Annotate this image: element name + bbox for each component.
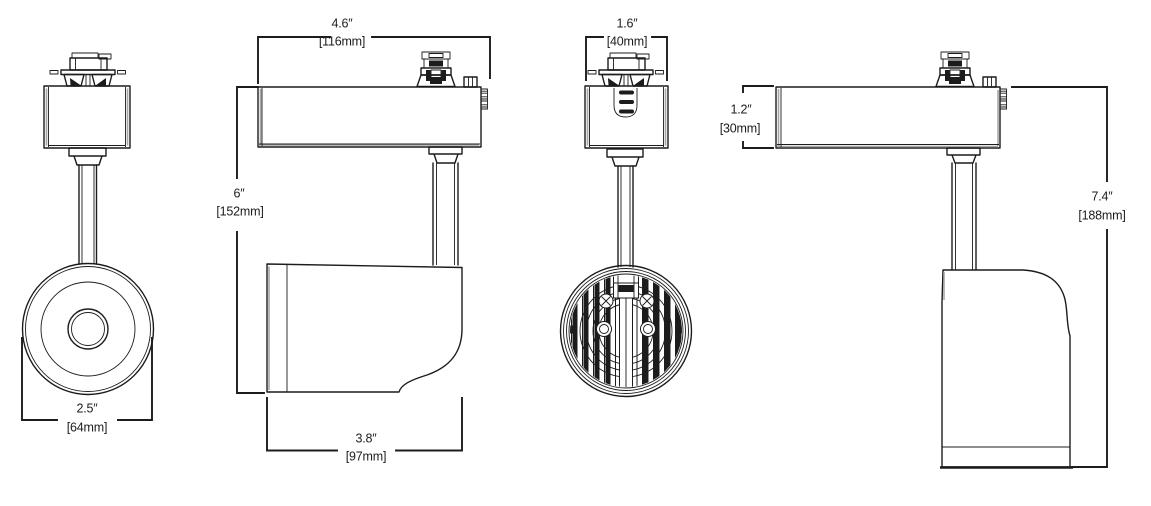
dim-housing-height-mm: [30mm] (720, 122, 760, 136)
dimension-mount-to-head: 6″ [152mm] (216, 87, 264, 393)
track-adapter (50, 53, 126, 86)
lamp-head-profile (940, 270, 1073, 468)
dim-housing-width-mm: [116mm] (319, 35, 365, 49)
mounting-collar (69, 148, 106, 165)
dim-housing-width-inches: 4.6″ (331, 17, 353, 31)
lamp-head-side (267, 264, 462, 392)
mounting-collar (607, 149, 643, 166)
view-front: 2.5″ [64mm] (22, 53, 154, 435)
dim-adapter-width-inches: 1.6″ (616, 17, 638, 31)
track-light-dimension-drawing: 2.5″ [64mm] 4.6″ [116mm] (0, 0, 1151, 506)
view-side-right: 1.2″ [30mm] 7.4″ [188mm] (720, 52, 1126, 468)
lamp-head-rear (556, 266, 696, 398)
dimension-head-length: 3.8″ [97mm] (267, 398, 462, 464)
dim-lens-diameter-inches: 2.5″ (76, 402, 98, 416)
dimension-housing-height: 1.2″ [30mm] (720, 86, 773, 148)
dimension-housing-width: 4.6″ [116mm] (258, 17, 490, 84)
dim-lens-diameter-mm: [64mm] (67, 421, 107, 435)
view-side-left: 4.6″ [116mm] 6″ [152mm] 3.8″ [97mm] (216, 17, 490, 464)
dim-head-length-mm: [97mm] (346, 450, 386, 464)
gear-housing (776, 87, 1000, 148)
dimension-overall-height: 7.4″ [188mm] (1012, 87, 1126, 467)
yoke-clamp (614, 266, 639, 390)
stem (618, 166, 633, 267)
heat-sink-fins (556, 266, 696, 397)
gear-housing (258, 87, 481, 147)
spec-drawing-canvas: 2.5″ [64mm] 4.6″ [116mm] (0, 0, 1151, 506)
stem (79, 165, 97, 264)
dim-mount-to-head-inches: 6″ (234, 187, 246, 201)
dim-housing-height-inches: 1.2″ (730, 103, 752, 117)
dim-overall-height-mm: [188mm] (1078, 209, 1125, 223)
track-adapter (417, 52, 488, 110)
mounting-collar (947, 148, 980, 163)
stem (952, 163, 976, 270)
gear-housing (44, 86, 130, 148)
mounting-collar (429, 147, 462, 163)
track-adapter (588, 53, 664, 86)
track-adapter (936, 52, 1007, 110)
dim-overall-height-inches: 7.4″ (1091, 190, 1113, 204)
view-rear: 1.6″ [40mm] (556, 17, 696, 398)
stem (433, 163, 458, 265)
dim-mount-to-head-mm: [152mm] (216, 205, 263, 219)
dimension-lens-diameter: 2.5″ [64mm] (22, 338, 152, 435)
dim-adapter-width-mm: [40mm] (607, 35, 647, 49)
vent-slots (614, 88, 637, 117)
gear-housing (585, 86, 668, 148)
dim-head-length-inches: 3.8″ (355, 432, 377, 446)
lamp-head-front (23, 264, 154, 395)
